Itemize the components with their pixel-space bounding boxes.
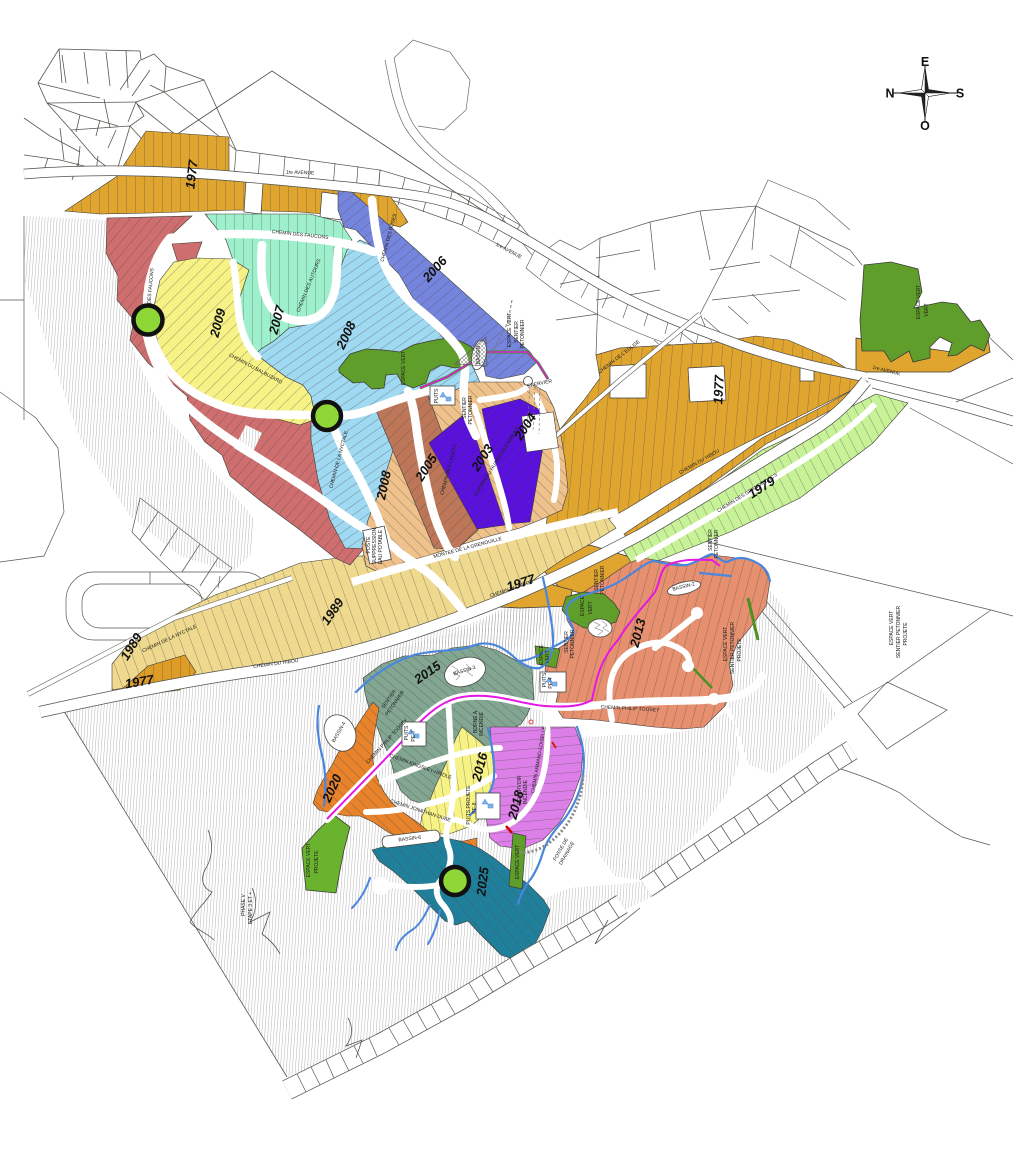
svg-text:PROJETE: PROJETE (737, 638, 743, 662)
svg-text:ESPACE VERT: ESPACE VERT (889, 611, 895, 646)
svg-text:PETONNIER: PETONNIER (570, 629, 576, 658)
svg-text:ESPACE VERT: ESPACE VERT (515, 845, 521, 880)
svg-text:ESPACE VERT: ESPACE VERT (401, 351, 407, 386)
svg-text:PE-7: PE-7 (411, 730, 417, 741)
svg-text:INCENDIE: INCENDIE (523, 779, 529, 804)
svg-text:PUITS: PUITS (434, 388, 440, 403)
svg-text:INCENDIE: INCENDIE (479, 711, 485, 736)
svg-text:ESPACE VERT: ESPACE VERT (507, 313, 513, 348)
svg-text:BASSIN: BASSIN (476, 345, 482, 364)
svg-text:N: N (885, 87, 894, 101)
svg-text:S: S (956, 87, 964, 101)
svg-text:PE-8: PE-8 (472, 802, 478, 813)
svg-text:EAU POTABLE: EAU POTABLE (378, 529, 384, 564)
svg-text:PROJETE: PROJETE (903, 622, 909, 646)
svg-text:ESPACE VERT: ESPACE VERT (916, 285, 922, 320)
svg-text:PUITS: PUITS (404, 725, 410, 740)
svg-text:PROJETE: PROJETE (314, 850, 320, 874)
svg-text:VERT: VERT (545, 650, 551, 663)
svg-text:ESPACE: ESPACE (580, 595, 586, 616)
svg-text:1re AVENUE: 1re AVENUE (286, 170, 315, 177)
svg-text:PE-4: PE-4 (548, 677, 554, 688)
svg-text:PETONNIER: PETONNIER (468, 395, 474, 424)
svg-text:VERT: VERT (924, 303, 930, 316)
svg-text:ETAPE 3 ET +: ETAPE 3 ET + (248, 892, 254, 924)
svg-text:PHASE V: PHASE V (241, 894, 247, 916)
svg-text:SENTIER PETONNIER: SENTIER PETONNIER (896, 606, 902, 659)
svg-text:O: O (920, 119, 930, 133)
svg-text:ESPACE VERT: ESPACE VERT (306, 843, 312, 878)
svg-text:PETONNIER: PETONNIER (714, 529, 720, 558)
svg-text:PETONNIER: PETONNIER (600, 565, 606, 594)
svg-text:VERT: VERT (588, 601, 594, 614)
svg-text:SENTIER PETONNIER: SENTIER PETONNIER (730, 622, 736, 675)
svg-text:E: E (921, 55, 929, 69)
svg-text:PETONNIER: PETONNIER (520, 319, 526, 348)
svg-text:1977: 1977 (710, 374, 727, 404)
svg-text:ESPACE VERT: ESPACE VERT (723, 627, 729, 662)
